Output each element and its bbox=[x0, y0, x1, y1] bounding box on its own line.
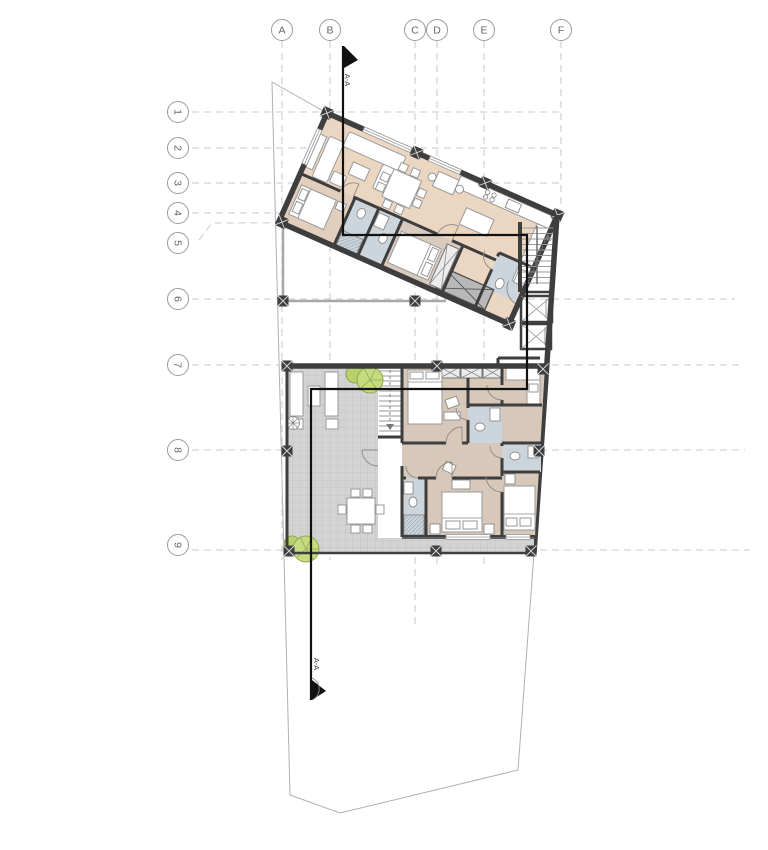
floor-plan-drawing: A-A A-A A B C D E F 1 bbox=[0, 0, 768, 850]
grid-bubble-row-8: 8 bbox=[168, 440, 189, 461]
grid-bubble-col-F: F bbox=[551, 20, 572, 41]
section-label-top: A-A bbox=[343, 74, 352, 87]
svg-text:7: 7 bbox=[171, 362, 183, 368]
grid-bubbles-rows: 1 2 3 4 5 6 7 8 bbox=[168, 102, 189, 556]
grid-bubble-row-9: 9 bbox=[168, 535, 189, 556]
svg-text:8: 8 bbox=[171, 447, 183, 453]
section-label-bottom: A-A bbox=[312, 658, 321, 671]
svg-text:5: 5 bbox=[171, 240, 183, 246]
svg-text:4: 4 bbox=[171, 210, 183, 216]
grid-bubble-row-6: 6 bbox=[168, 289, 189, 310]
grid-bubble-col-D: D bbox=[427, 20, 448, 41]
svg-text:D: D bbox=[433, 25, 441, 37]
svg-text:F: F bbox=[558, 25, 564, 37]
section-arrow-top bbox=[344, 46, 358, 68]
svg-text:6: 6 bbox=[171, 296, 183, 302]
grid-bubble-col-C: C bbox=[405, 20, 426, 41]
grid-bubble-col-E: E bbox=[474, 20, 495, 41]
svg-text:A: A bbox=[278, 25, 285, 37]
entry-hall-floor bbox=[378, 437, 402, 537]
grid-bubble-row-7: 7 bbox=[168, 355, 189, 376]
svg-text:E: E bbox=[480, 25, 487, 37]
lower-apartment bbox=[284, 365, 545, 562]
grid-bubbles-columns: A B C D E F bbox=[272, 20, 572, 41]
svg-text:1: 1 bbox=[171, 109, 183, 115]
svg-text:2: 2 bbox=[171, 145, 183, 151]
svg-text:3: 3 bbox=[171, 180, 183, 186]
svg-text:C: C bbox=[411, 25, 419, 37]
svg-text:9: 9 bbox=[171, 542, 183, 548]
grid-bubble-col-A: A bbox=[272, 20, 293, 41]
lower-windows bbox=[446, 535, 530, 540]
grid-bubble-row-4: 4 bbox=[168, 203, 189, 224]
floor-plan-canvas: A-A A-A A B C D E F 1 bbox=[0, 0, 768, 850]
grid-bubble-row-3: 3 bbox=[168, 173, 189, 194]
grid-bubble-row-2: 2 bbox=[168, 138, 189, 159]
grid-bubble-col-B: B bbox=[320, 20, 341, 41]
grid-bubble-row-1: 1 bbox=[168, 102, 189, 123]
grid-bubble-row-5: 5 bbox=[168, 233, 189, 254]
svg-text:B: B bbox=[326, 25, 333, 37]
